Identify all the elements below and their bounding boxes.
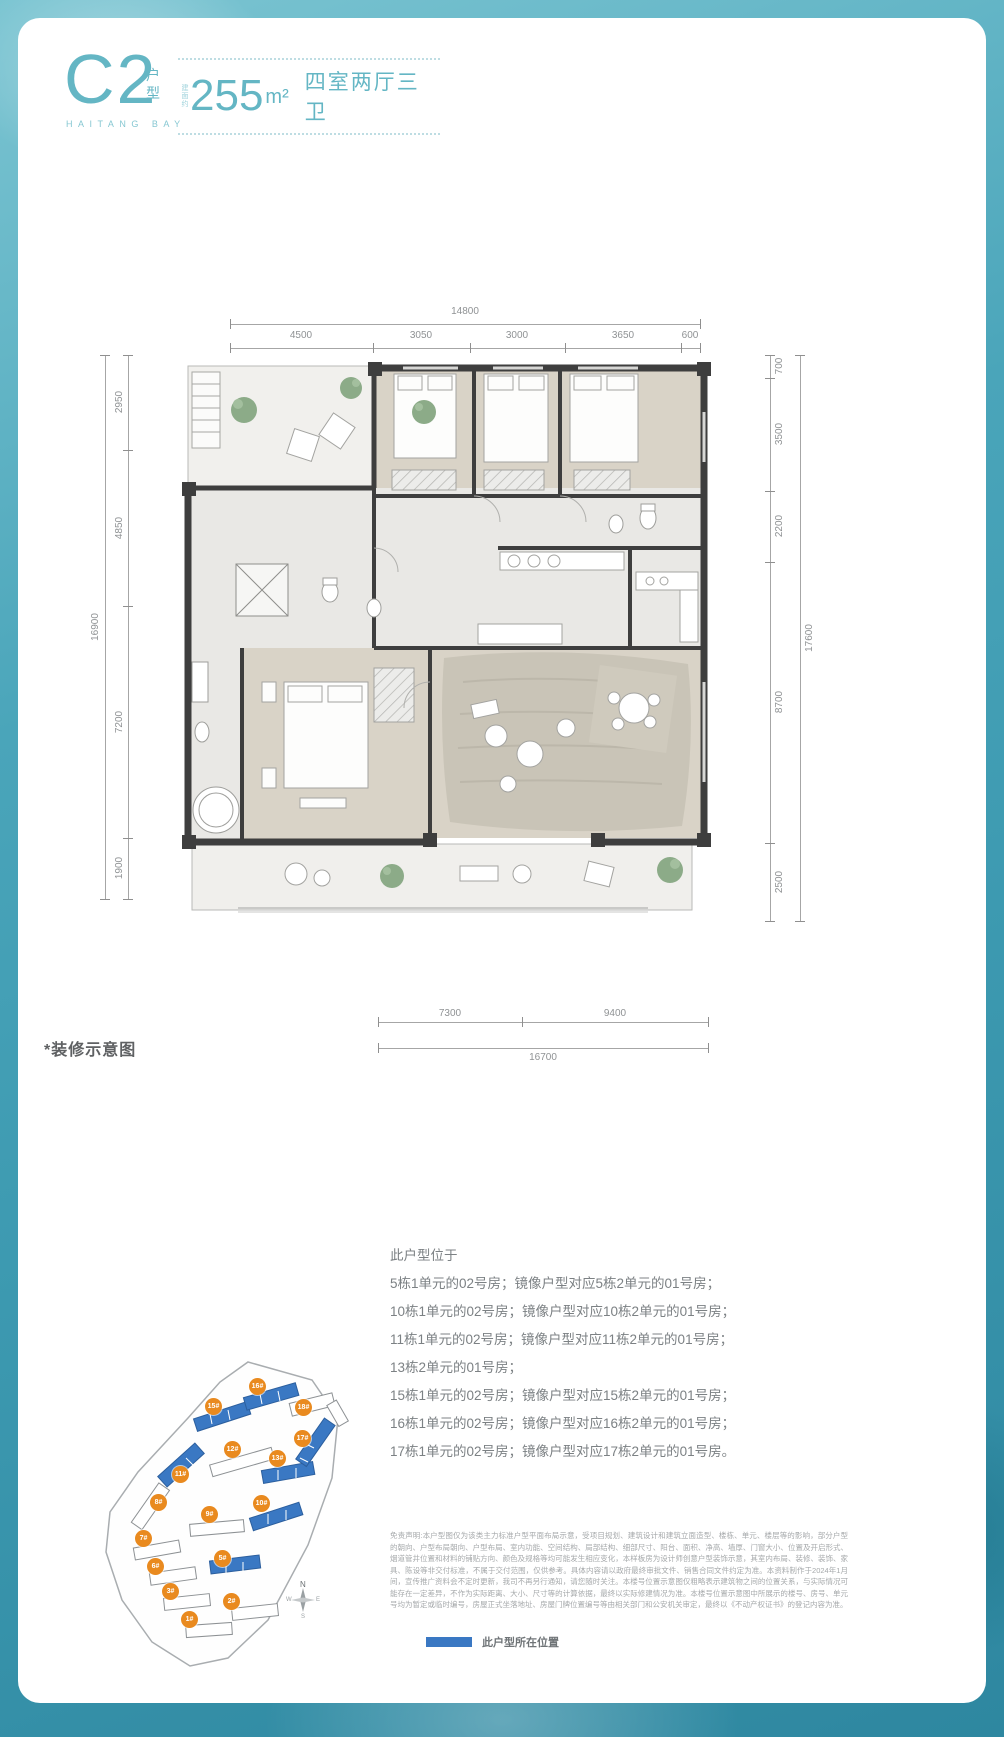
plan-code: C2 — [64, 44, 157, 114]
compass-e: E — [316, 1597, 320, 1603]
building-badge: 7# — [135, 1530, 152, 1547]
dim-line — [105, 355, 106, 900]
area-block: 建面约 255 m² 四室两厅三卫 — [178, 58, 440, 135]
dim-left-seg: 2950 — [114, 372, 126, 432]
site-map-svg — [98, 1358, 378, 1678]
compass-s: S — [301, 1614, 305, 1620]
dim-left-seg: 1900 — [114, 838, 126, 898]
decoration-note: *装修示意图 — [44, 1036, 136, 1060]
dim-line — [770, 355, 771, 921]
dim-bottom-seg: 9400 — [585, 1008, 645, 1020]
legend-swatch — [426, 1637, 472, 1647]
building-badge: 18# — [295, 1399, 312, 1416]
building-badge: 1# — [181, 1611, 198, 1628]
compass-w: W — [286, 1597, 292, 1603]
stairs — [192, 372, 220, 448]
building-badge: 17# — [294, 1430, 311, 1447]
dining-table-icon — [589, 665, 677, 753]
dim-left-seg: 4850 — [114, 498, 126, 558]
dim-right-seg: 2200 — [774, 496, 786, 556]
location-description: 此户型位于 5栋1单元的02号房；镜像户型对应5栋2单元的01号房； 10栋1单… — [390, 1248, 850, 1472]
dim-line — [378, 1022, 708, 1023]
compass-n: N — [300, 1580, 306, 1589]
area-prefix: 建面约 — [180, 84, 188, 108]
dim-top-seg: 4500 — [271, 330, 331, 342]
location-line: 15栋1单元的02号房；镜像户型对应15栋2单元的01号房； — [390, 1388, 850, 1403]
compass-icon: N E S W — [286, 1580, 320, 1620]
location-intro: 此户型位于 — [390, 1248, 850, 1263]
location-line: 16栋1单元的02号房；镜像户型对应16栋2单元的01号房； — [390, 1416, 850, 1431]
location-line: 10栋1单元的02号房；镜像户型对应10栋2单元的01号房； — [390, 1304, 850, 1319]
building-badge: 11# — [172, 1466, 189, 1483]
dim-line — [230, 348, 700, 349]
dim-right-total: 17600 — [804, 608, 816, 668]
location-line: 5栋1单元的02号房；镜像户型对应5栋2单元的01号房； — [390, 1276, 850, 1291]
dim-top-seg: 3050 — [391, 330, 451, 342]
building-badge: 13# — [269, 1450, 286, 1467]
building-badge: 3# — [162, 1583, 179, 1600]
legend: 此户型所在位置 — [426, 1634, 559, 1650]
area-unit: m² — [265, 86, 288, 109]
dim-line — [378, 1048, 708, 1049]
building-badge: 8# — [150, 1494, 167, 1511]
brand-name: HAITANG BAY — [66, 119, 186, 129]
dim-top-seg: 3000 — [487, 330, 547, 342]
area-value: 255 — [190, 74, 263, 118]
island-counter — [478, 624, 562, 644]
location-line: 13栋2单元的01号房； — [390, 1360, 850, 1375]
legend-label: 此户型所在位置 — [482, 1634, 559, 1650]
building-badge: 2# — [223, 1593, 240, 1610]
dim-right-seg: 8700 — [774, 672, 786, 732]
location-line: 11栋1单元的02号房；镜像户型对应11栋2单元的01号房； — [390, 1332, 850, 1347]
floor-plan-svg — [178, 352, 726, 952]
building-badge: 6# — [147, 1558, 164, 1575]
dim-bottom-seg: 7300 — [420, 1008, 480, 1020]
disclaimer-text: 免责声明:本户型图仅为该类主力标准户型平面布局示意，受项目规划、建筑设计和建筑立… — [390, 1530, 848, 1611]
dim-line — [230, 324, 700, 325]
balcony-floor — [192, 844, 692, 910]
building-badge: 16# — [249, 1378, 266, 1395]
layout-label: 四室两厅三卫 — [305, 66, 438, 126]
building-badge: 5# — [214, 1550, 231, 1567]
dim-line — [128, 355, 129, 900]
dim-top-total: 14800 — [435, 306, 495, 318]
dim-top-seg: 600 — [660, 330, 720, 342]
page-card: C2 户型 HAITANG BAY 建面约 255 m² 四室两厅三卫 1480… — [18, 18, 986, 1703]
dim-right-seg: 2500 — [774, 852, 786, 912]
building-badge: 15# — [205, 1398, 222, 1415]
site-map: 1# 2# 3# 5# 6# 7# 8# 9# 10# 11# 12# 13# … — [98, 1358, 378, 1678]
dim-left-seg: 7200 — [114, 692, 126, 752]
building-badge: 12# — [224, 1441, 241, 1458]
building-badge: 10# — [253, 1495, 270, 1512]
building-badge: 9# — [201, 1506, 218, 1523]
dim-right-seg: 700 — [774, 336, 786, 396]
location-line: 17栋1单元的02号房；镜像户型对应17栋2单元的01号房。 — [390, 1444, 850, 1459]
elevator-shaft — [236, 564, 288, 616]
dim-bottom-total: 16700 — [513, 1052, 573, 1064]
wardrobe-icon — [392, 470, 630, 490]
dim-line — [800, 355, 801, 921]
dim-top-seg: 3650 — [593, 330, 653, 342]
dim-left-total: 16900 — [90, 597, 102, 657]
cabinet-row — [500, 552, 624, 570]
plan-type-label: 户型 — [146, 66, 162, 102]
dim-right-seg: 3500 — [774, 404, 786, 464]
